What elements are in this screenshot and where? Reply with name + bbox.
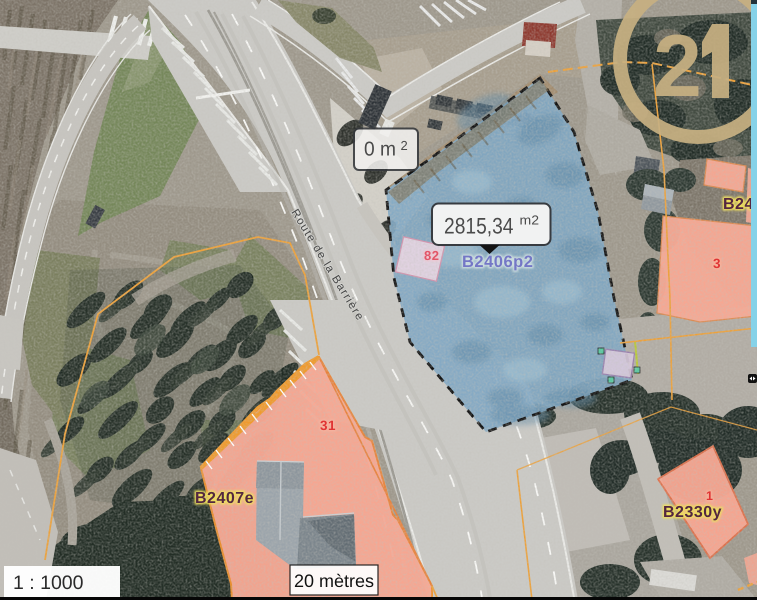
svg-text:B2406p2: B2406p2 bbox=[462, 253, 533, 271]
svg-text:B2330y: B2330y bbox=[663, 504, 722, 521]
svg-text:2815,34: 2815,34 bbox=[444, 214, 514, 239]
svg-text:2: 2 bbox=[653, 16, 702, 115]
svg-text:1: 1 bbox=[706, 489, 713, 503]
svg-text:0 m: 0 m bbox=[364, 139, 396, 161]
svg-text:1 : 1000: 1 : 1000 bbox=[13, 572, 84, 594]
svg-text:20 mètres: 20 mètres bbox=[294, 571, 374, 591]
svg-text:31: 31 bbox=[320, 418, 336, 433]
svg-text:B24: B24 bbox=[723, 196, 754, 213]
svg-text:B2407e: B2407e bbox=[195, 490, 254, 507]
svg-text:82: 82 bbox=[424, 248, 439, 263]
svg-text:m2: m2 bbox=[520, 213, 540, 228]
svg-text:2: 2 bbox=[401, 138, 408, 153]
svg-text:3: 3 bbox=[713, 256, 721, 271]
